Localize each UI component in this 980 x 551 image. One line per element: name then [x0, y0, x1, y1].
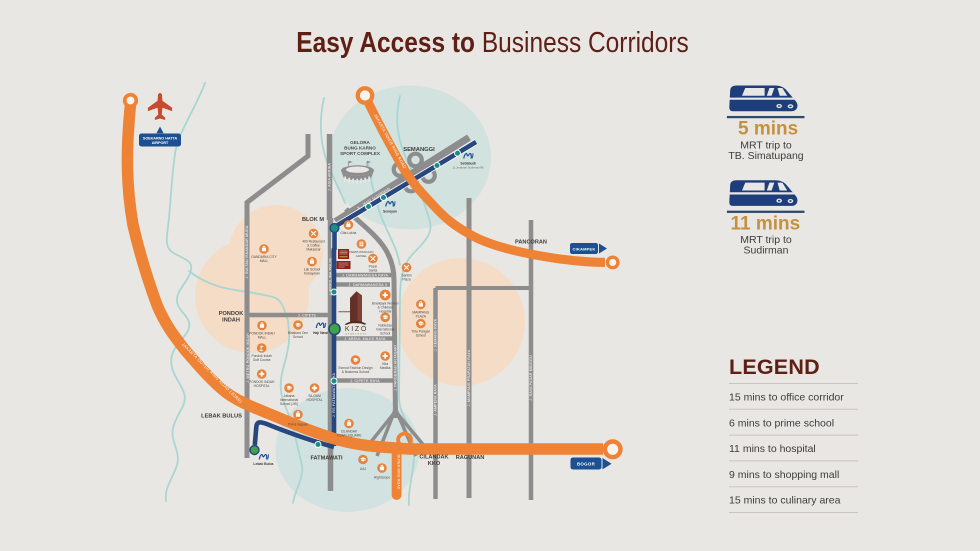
svg-text:INDAH: INDAH — [222, 318, 240, 324]
svg-text:15 mins to culinary area: 15 mins to culinary area — [729, 495, 841, 507]
svg-text:J. METRO PONDOK INDAH: J. METRO PONDOK INDAH — [246, 333, 250, 383]
svg-text:& Business School: & Business School — [342, 370, 370, 374]
svg-text:J. DARMAWANGSA X: J. DARMAWANGSA X — [349, 283, 388, 287]
svg-text:Lebak Bulus: Lebak Bulus — [253, 462, 273, 466]
svg-text:HighScope: HighScope — [374, 476, 390, 480]
svg-text:FATMAWATI: FATMAWATI — [310, 456, 343, 462]
svg-text:J. PANGERAN ANTASARI: J. PANGERAN ANTASARI — [394, 345, 398, 391]
svg-text:J. KEMANG RAYA: J. KEMANG RAYA — [434, 318, 438, 351]
svg-text:PLAZA: PLAZA — [416, 314, 427, 318]
svg-text:Plaza: Plaza — [402, 278, 410, 282]
svg-text:Easy Access to Business Corrid: Easy Access to Business Corridors — [296, 26, 688, 58]
svg-text:J. CIPETE RAYA: J. CIPETE RAYA — [350, 379, 380, 383]
svg-text:Gita Lokha: Gita Lokha — [340, 231, 356, 235]
svg-text:Golf Course: Golf Course — [253, 358, 271, 362]
svg-text:J. AMPERA RAYA: J. AMPERA RAYA — [434, 384, 438, 416]
svg-text:Makassar: Makassar — [306, 248, 321, 252]
svg-text:PANCORAN: PANCORAN — [515, 240, 547, 246]
svg-text:School (JIS): School (JIS) — [280, 402, 298, 406]
svg-text:MALL: MALL — [260, 259, 269, 263]
svg-text:RAGUNAN: RAGUNAN — [456, 455, 485, 461]
svg-text:LEGEND: LEGEND — [729, 355, 820, 379]
svg-text:J. MAMPANG PRAPATAN RAYA: J. MAMPANG PRAPATAN RAYA — [467, 349, 471, 406]
svg-text:Haji Nawi: Haji Nawi — [313, 331, 328, 335]
svg-text:9 mins to shopping mall: 9 mins to shopping mall — [729, 469, 839, 481]
svg-text:TB. Simatupang: TB. Simatupang — [728, 150, 803, 162]
svg-text:11 mins to hospital: 11 mins to hospital — [729, 443, 816, 455]
svg-text:HOSPITAL: HOSPITAL — [254, 384, 270, 388]
svg-text:JL Jenderal Sudirman 86: JL Jenderal Sudirman 86 — [453, 166, 484, 170]
svg-text:J. SULTAN ISKANDAR MUDA: J. SULTAN ISKANDAR MUDA — [245, 225, 249, 278]
svg-text:PONDOK: PONDOK — [219, 311, 244, 317]
svg-text:Poins Square: Poins Square — [288, 423, 308, 427]
svg-text:KIZO: KIZO — [345, 326, 368, 333]
svg-text:J. ASIA AFRIKA: J. ASIA AFRIKA — [328, 163, 332, 192]
svg-text:KKO: KKO — [428, 461, 441, 467]
svg-text:J. DARMAWANGSA RAYA: J. DARMAWANGSA RAYA — [342, 273, 389, 277]
svg-text:J. RAYA PASAR MINGGU: J. RAYA PASAR MINGGU — [529, 355, 533, 401]
svg-text:BLOK M: BLOK M — [302, 217, 324, 223]
svg-text:UAJ: UAJ — [360, 467, 367, 471]
svg-text:Senayan: Senayan — [383, 210, 397, 214]
svg-text:Medika: Medika — [380, 366, 391, 370]
svg-text:CIKAMPEK: CIKAMPEK — [573, 247, 596, 252]
svg-text:AIRPORT: AIRPORT — [152, 141, 169, 145]
svg-text:BUNG KARNO: BUNG KARNO — [344, 146, 376, 151]
svg-text:15 mins to office corridor: 15 mins to office corridor — [729, 392, 844, 404]
svg-text:J. ABDUL MAJID RAYA: J. ABDUL MAJID RAYA — [344, 337, 386, 341]
svg-text:HOSPITAL: HOSPITAL — [306, 398, 322, 402]
svg-text:School: School — [293, 335, 303, 339]
svg-text:Sudirman: Sudirman — [744, 244, 789, 256]
svg-text:JAKSEL: JAKSEL — [356, 254, 368, 258]
svg-text:OUTER RING ROAD: OUTER RING ROAD — [397, 454, 401, 489]
svg-text:SOEKARNO HATTA: SOEKARNO HATTA — [143, 136, 178, 140]
svg-text:School: School — [416, 334, 426, 338]
svg-text:SEMANGGI: SEMANGGI — [403, 147, 435, 153]
svg-text:11 mins: 11 mins — [731, 214, 801, 235]
svg-text:GELORA: GELORA — [350, 140, 370, 145]
svg-text:TOWN SQUARE: TOWN SQUARE — [337, 434, 363, 438]
svg-text:Santa: Santa — [369, 269, 378, 273]
svg-text:J. CIPETE: J. CIPETE — [298, 313, 317, 317]
svg-text:School: School — [380, 331, 390, 335]
svg-text:BOGOR: BOGOR — [577, 462, 596, 467]
svg-text:MALL: MALL — [258, 336, 267, 340]
svg-text:APARTMENT: APARTMENT — [345, 333, 367, 336]
svg-text:LEBAK BULUS: LEBAK BULUS — [201, 414, 242, 420]
svg-text:Kebayoran: Kebayoran — [304, 272, 320, 276]
svg-text:6 mins to prime school: 6 mins to prime school — [729, 417, 834, 429]
svg-text:5 mins: 5 mins — [738, 119, 798, 140]
svg-text:CILANDAK: CILANDAK — [419, 455, 448, 461]
svg-text:SPORT COMPLEX: SPORT COMPLEX — [340, 151, 381, 156]
